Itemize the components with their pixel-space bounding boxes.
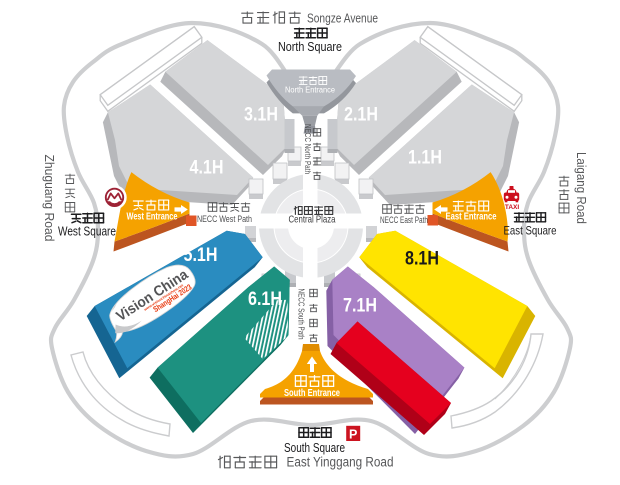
svg-text:P: P: [349, 428, 357, 442]
svg-text:East Yinggang Road: East Yinggang Road: [287, 455, 394, 470]
svg-text:East Entrance: East Entrance: [446, 211, 497, 222]
svg-text:West Entrance: West Entrance: [127, 211, 178, 222]
svg-text:Songze Avenue: Songze Avenue: [307, 11, 378, 26]
svg-text:6.1H: 6.1H: [248, 289, 282, 310]
svg-text:Zhuguang Road: Zhuguang Road: [42, 155, 56, 242]
svg-text:West Square: West Square: [58, 224, 116, 239]
svg-text:NECC North Path: NECC North Path: [303, 124, 312, 174]
svg-text:Central Plaza: Central Plaza: [289, 214, 336, 226]
svg-text:NECC East Path: NECC East Path: [380, 215, 428, 225]
svg-text:3.1H: 3.1H: [244, 105, 278, 126]
svg-text:North Square: North Square: [278, 39, 342, 54]
svg-text:Laigang Road: Laigang Road: [574, 152, 588, 224]
svg-text:7.1H: 7.1H: [343, 296, 377, 317]
svg-text:NECC South Path: NECC South Path: [297, 289, 306, 340]
svg-text:5.1H: 5.1H: [184, 245, 218, 266]
svg-text:TAXI: TAXI: [505, 204, 520, 211]
svg-text:NECC West Path: NECC West Path: [197, 214, 252, 224]
svg-text:1.1H: 1.1H: [408, 148, 442, 169]
svg-text:2.1H: 2.1H: [344, 105, 378, 126]
svg-text:East Square: East Square: [504, 224, 557, 238]
svg-text:4.1H: 4.1H: [190, 158, 224, 179]
svg-text:South Square: South Square: [284, 440, 345, 455]
svg-text:North Entrance: North Entrance: [285, 86, 336, 95]
svg-text:South Entrance: South Entrance: [284, 388, 340, 399]
svg-text:8.1H: 8.1H: [405, 249, 439, 270]
